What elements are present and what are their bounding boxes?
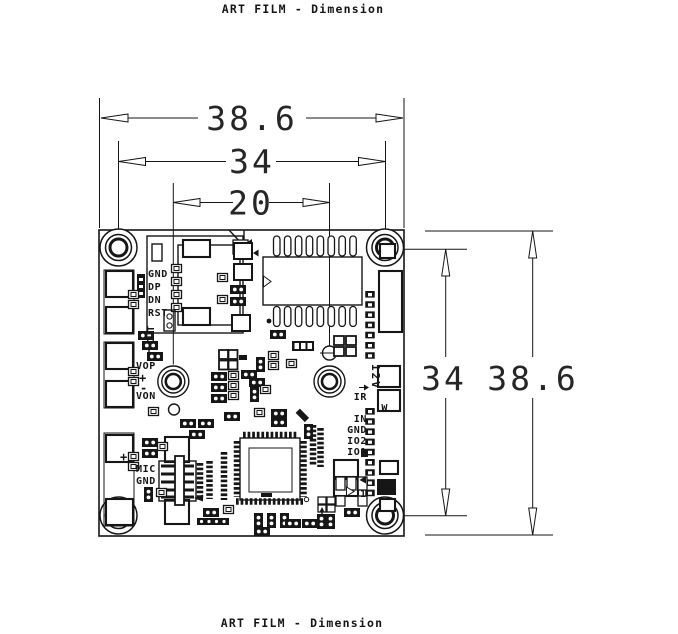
dim-board-height: 38.6: [487, 359, 578, 398]
smd-pad: [234, 243, 252, 259]
label-mic-gnd: GND: [136, 476, 156, 487]
dim-hole-span-width: 34: [229, 142, 275, 181]
pin1-marker-icon: [253, 250, 259, 257]
sheet-title-top: ART FILM - Dimension: [222, 2, 384, 16]
label-gnd: GND: [347, 425, 367, 436]
arrowhead: [173, 199, 200, 207]
label-ir: IR: [354, 392, 368, 403]
arrowhead: [101, 114, 128, 122]
left-connector-speaker: [104, 342, 139, 408]
label-in: IN: [354, 414, 367, 425]
left-connector-top: [104, 270, 139, 334]
cad-dimension-sheet: ART FILM - Dimension ART FILM - Dimensio…: [0, 0, 678, 634]
smd-pad: [230, 285, 246, 294]
label-usb-dp: DP: [148, 282, 161, 293]
lens-hole-right: [314, 366, 345, 397]
dim-board-width: 38.6: [206, 99, 297, 138]
smd-pad: [218, 296, 228, 304]
soic16-ic: [253, 236, 362, 327]
arrowhead: [359, 158, 386, 166]
label-usb-gnd: GND: [148, 269, 168, 280]
smd-pad: [230, 297, 246, 306]
pin1-marker-icon: [264, 276, 272, 287]
arrowhead: [529, 508, 537, 535]
smd-pad: [172, 265, 182, 273]
smd-pad: [129, 301, 139, 309]
sheet-title-bottom: ART FILM - Dimension: [221, 616, 383, 630]
label-io1: IO1: [347, 447, 367, 458]
pcb-board: GND DP DN RST CUT VOP + - VON + MIC GND …: [99, 229, 404, 536]
pcb-dimension-drawing: ART FILM - Dimension ART FILM - Dimensio…: [0, 0, 678, 634]
dim-inner-hole-span: 20: [228, 184, 274, 223]
smd-pad: [129, 378, 139, 386]
label-w: W: [381, 403, 388, 414]
dim-hole-span-height: 34: [421, 359, 467, 398]
small-hole: [169, 404, 180, 415]
label-cut: CUT: [146, 325, 157, 345]
arrowhead: [442, 489, 450, 516]
mounting-hole-top-left: [100, 229, 137, 266]
smd-component-scatter: [138, 330, 368, 502]
arrowhead: [376, 114, 403, 122]
pin1-dot-icon: [267, 319, 272, 324]
smd-pad: [234, 264, 252, 280]
label-usb-rst: RST: [148, 308, 168, 319]
label-io2: IO2: [347, 436, 367, 447]
arrowhead: [303, 199, 330, 207]
qfp-main-chip: [236, 435, 309, 502]
lens-hole-left: [158, 366, 189, 397]
pin1-dot-icon: [304, 497, 308, 501]
arrowhead: [442, 249, 450, 276]
shield-pad: [377, 479, 396, 495]
arrowhead: [529, 231, 537, 258]
label-mic-plus: +: [120, 450, 127, 464]
smd-pad: [129, 453, 139, 461]
label-12v: 12V: [369, 364, 382, 390]
label-von: VON: [136, 391, 156, 402]
smd-pad: [232, 315, 250, 331]
smd-pad: [129, 291, 139, 299]
arrowhead: [119, 158, 146, 166]
label-pin1: 1: [360, 489, 367, 500]
label-usb-dn: DN: [148, 295, 161, 306]
smd-pad: [172, 291, 182, 299]
smd-pad: [172, 278, 182, 286]
smd-pad: [218, 274, 228, 282]
label-mic: MIC: [136, 464, 156, 475]
left-connector-mic: [104, 433, 139, 526]
